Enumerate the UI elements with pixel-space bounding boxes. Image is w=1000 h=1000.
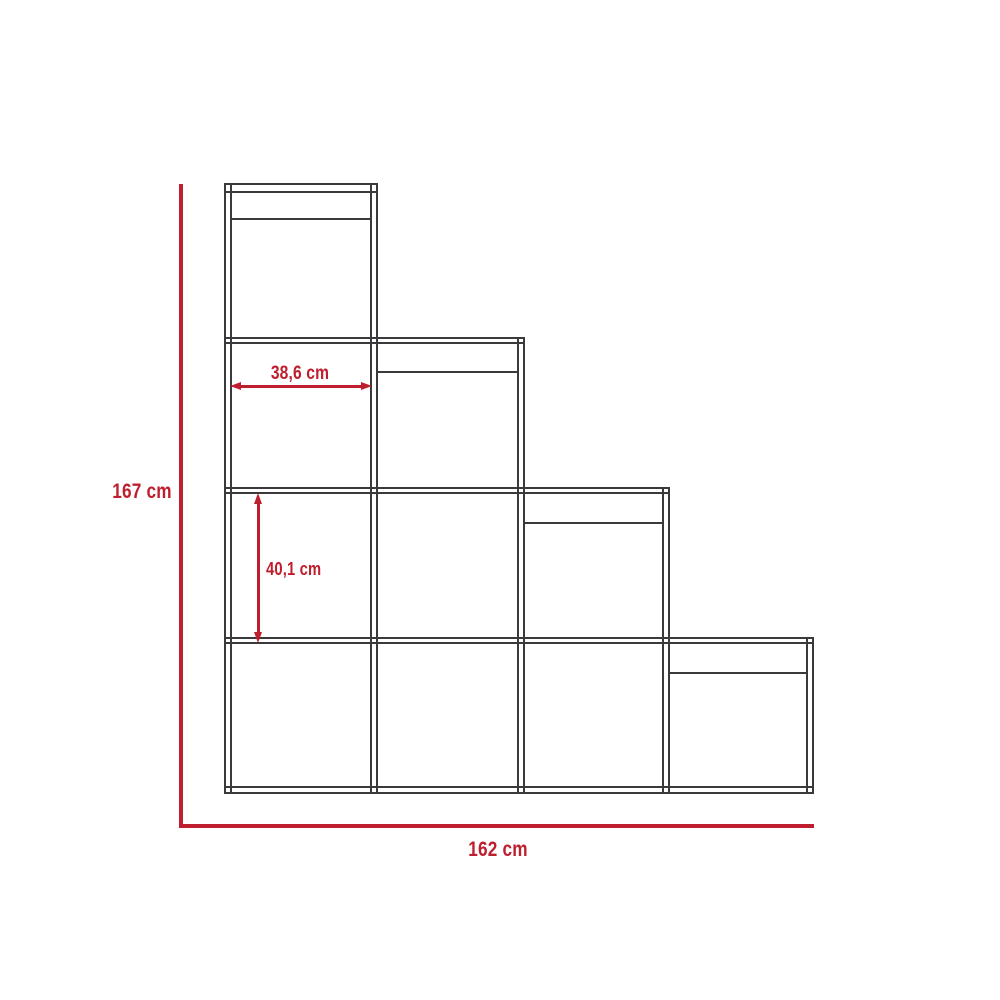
base-lower <box>224 792 814 794</box>
edge-right-outer <box>812 637 814 794</box>
shelf-row3-lower <box>224 642 814 644</box>
edge-right-inner <box>806 637 808 794</box>
overall-width-label: 162 cm <box>457 839 539 860</box>
arrow-shaft <box>257 499 260 637</box>
cube-height-label: 40,1 cm <box>266 560 321 578</box>
col2-back-panel-edge <box>376 371 517 373</box>
shelf-row1-lower <box>224 342 525 344</box>
divider-3-outer <box>662 487 664 794</box>
arrowhead-down-icon <box>254 632 262 643</box>
shelf-row2-upper <box>224 487 670 489</box>
width-extent-line <box>179 824 814 829</box>
col3-back-panel-edge <box>523 522 662 524</box>
cube-width-label: 38,6 cm <box>259 364 341 383</box>
overall-height-label: 167 cm <box>101 481 183 502</box>
col1-top-inner <box>224 191 378 193</box>
shelf-row3-upper <box>224 637 814 639</box>
col4-back-panel-edge <box>668 672 807 674</box>
divider-2-outer <box>517 337 519 794</box>
arrowhead-right-icon <box>361 382 372 390</box>
shelf-row2-lower <box>224 492 670 494</box>
arrow-shaft <box>236 385 366 388</box>
height-extent-line <box>179 184 184 828</box>
divider-2-inner <box>523 337 525 794</box>
cube-width-arrow <box>230 382 372 391</box>
divider-3-inner <box>668 487 670 794</box>
col1-back-panel-edge <box>230 218 370 220</box>
cube-height-arrow <box>254 493 263 643</box>
shelf-row1-upper <box>224 337 525 339</box>
dimension-drawing: 167 cm 162 cm 38,6 cm 40,1 cm <box>0 0 1000 1000</box>
base-upper <box>224 786 814 788</box>
col1-top-outer <box>224 183 378 185</box>
